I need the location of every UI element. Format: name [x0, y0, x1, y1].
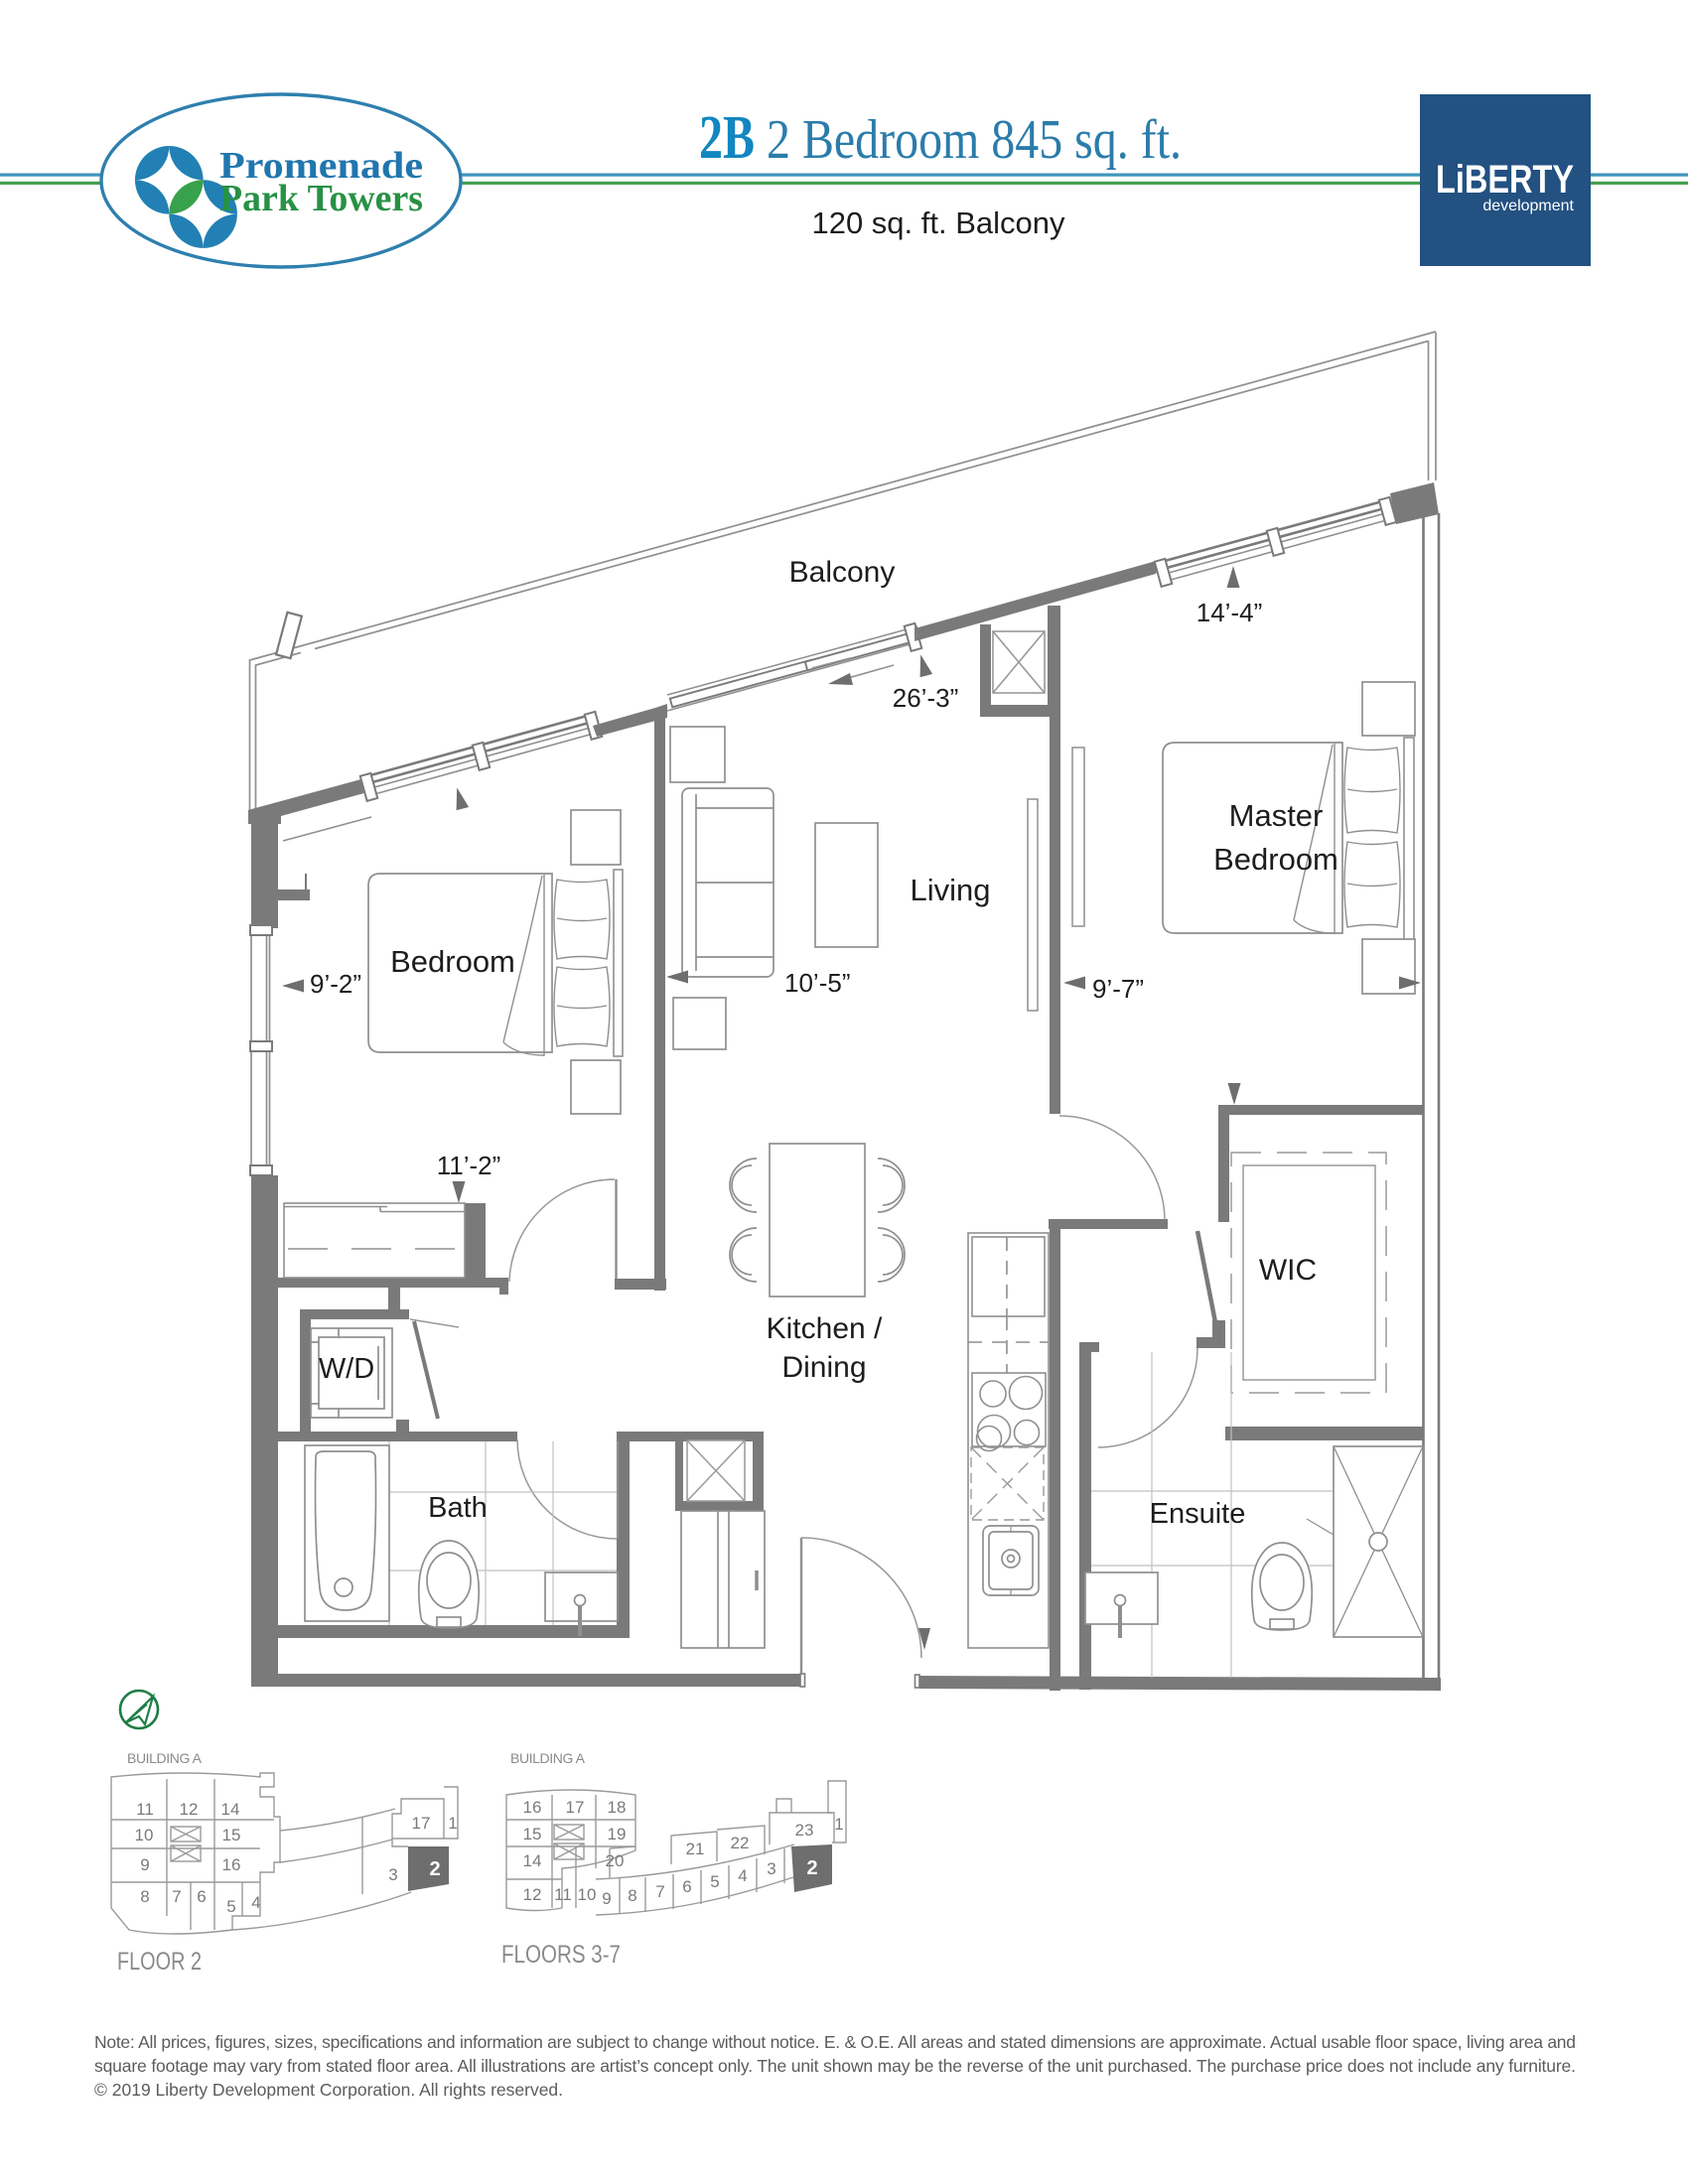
svg-text:11: 11 — [136, 1800, 154, 1819]
svg-text:120 sq. ft. Balcony: 120 sq. ft. Balcony — [811, 205, 1065, 240]
svg-text:Dining: Dining — [781, 1351, 866, 1384]
svg-text:Balcony: Balcony — [789, 556, 896, 589]
svg-text:FLOORS 3-7: FLOORS 3-7 — [501, 1941, 621, 1969]
svg-text:LiBERTY: LiBERTY — [1436, 158, 1574, 202]
svg-text:18: 18 — [608, 1798, 627, 1817]
svg-text:19: 19 — [608, 1825, 627, 1843]
svg-text:9: 9 — [140, 1855, 149, 1874]
svg-text:development: development — [1482, 198, 1574, 214]
svg-text:2 Bedroom 845 sq. ft.: 2 Bedroom 845 sq. ft. — [767, 109, 1182, 171]
svg-text:3: 3 — [767, 1859, 775, 1878]
svg-text:9’-7”: 9’-7” — [1092, 974, 1144, 1004]
svg-text:14’-4”: 14’-4” — [1196, 598, 1262, 627]
svg-text:11: 11 — [554, 1885, 572, 1904]
svg-text:5: 5 — [226, 1897, 235, 1916]
svg-text:12: 12 — [180, 1800, 199, 1819]
svg-text:1: 1 — [448, 1814, 457, 1833]
svg-text:11’-2”: 11’-2” — [437, 1151, 501, 1180]
svg-text:14: 14 — [523, 1851, 542, 1870]
svg-text:square footage may vary from s: square footage may vary from stated floo… — [94, 2056, 1576, 2076]
svg-text:15: 15 — [222, 1826, 241, 1844]
svg-text:5: 5 — [710, 1872, 719, 1891]
svg-text:1: 1 — [834, 1815, 843, 1834]
svg-text:7: 7 — [655, 1882, 664, 1901]
svg-text:Kitchen /: Kitchen / — [767, 1312, 883, 1345]
svg-text:14: 14 — [221, 1800, 240, 1819]
svg-text:16: 16 — [222, 1855, 241, 1874]
svg-text:21: 21 — [686, 1840, 705, 1858]
svg-text:Bath: Bath — [428, 1492, 488, 1524]
svg-text:10: 10 — [135, 1826, 154, 1844]
svg-text:Bedroom: Bedroom — [1213, 842, 1338, 877]
svg-text:Park Towers: Park Towers — [219, 178, 423, 219]
svg-text:Note: All prices, figures, siz: Note: All prices, figures, sizes, specif… — [94, 2032, 1576, 2052]
svg-text:4: 4 — [738, 1866, 747, 1885]
svg-text:Ensuite: Ensuite — [1150, 1498, 1246, 1530]
svg-text:2: 2 — [806, 1857, 817, 1879]
svg-text:9’-2”: 9’-2” — [310, 969, 361, 999]
svg-text:6: 6 — [682, 1877, 691, 1896]
svg-text:17: 17 — [412, 1814, 431, 1833]
svg-text:7: 7 — [172, 1887, 181, 1906]
svg-text:22: 22 — [731, 1834, 750, 1852]
svg-text:© 2019 Liberty Development Cor: © 2019 Liberty Development Corporation. … — [94, 2080, 563, 2100]
svg-text:2: 2 — [429, 1858, 440, 1880]
svg-text:6: 6 — [197, 1887, 206, 1906]
svg-text:9: 9 — [602, 1889, 611, 1908]
svg-text:16: 16 — [523, 1798, 542, 1817]
svg-text:W/D: W/D — [319, 1353, 374, 1385]
svg-text:12: 12 — [523, 1885, 542, 1904]
svg-text:23: 23 — [795, 1821, 814, 1840]
svg-text:Living: Living — [911, 873, 991, 907]
svg-text:4: 4 — [251, 1893, 260, 1912]
svg-text:2B: 2B — [699, 104, 755, 172]
svg-text:WIC: WIC — [1259, 1254, 1317, 1287]
svg-text:26’-3”: 26’-3” — [893, 683, 958, 713]
svg-text:15: 15 — [523, 1825, 542, 1843]
svg-text:BUILDING A: BUILDING A — [510, 1750, 586, 1766]
svg-text:3: 3 — [388, 1865, 397, 1884]
svg-text:20: 20 — [606, 1851, 625, 1870]
svg-text:10: 10 — [578, 1885, 597, 1904]
svg-text:Bedroom: Bedroom — [390, 944, 515, 979]
svg-text:8: 8 — [628, 1886, 636, 1905]
svg-text:17: 17 — [566, 1798, 585, 1817]
svg-text:8: 8 — [140, 1887, 149, 1906]
svg-text:BUILDING A: BUILDING A — [127, 1750, 203, 1766]
svg-text:Master: Master — [1229, 798, 1324, 833]
svg-text:10’-5”: 10’-5” — [784, 968, 850, 998]
svg-text:FLOOR 2: FLOOR 2 — [117, 1948, 202, 1976]
